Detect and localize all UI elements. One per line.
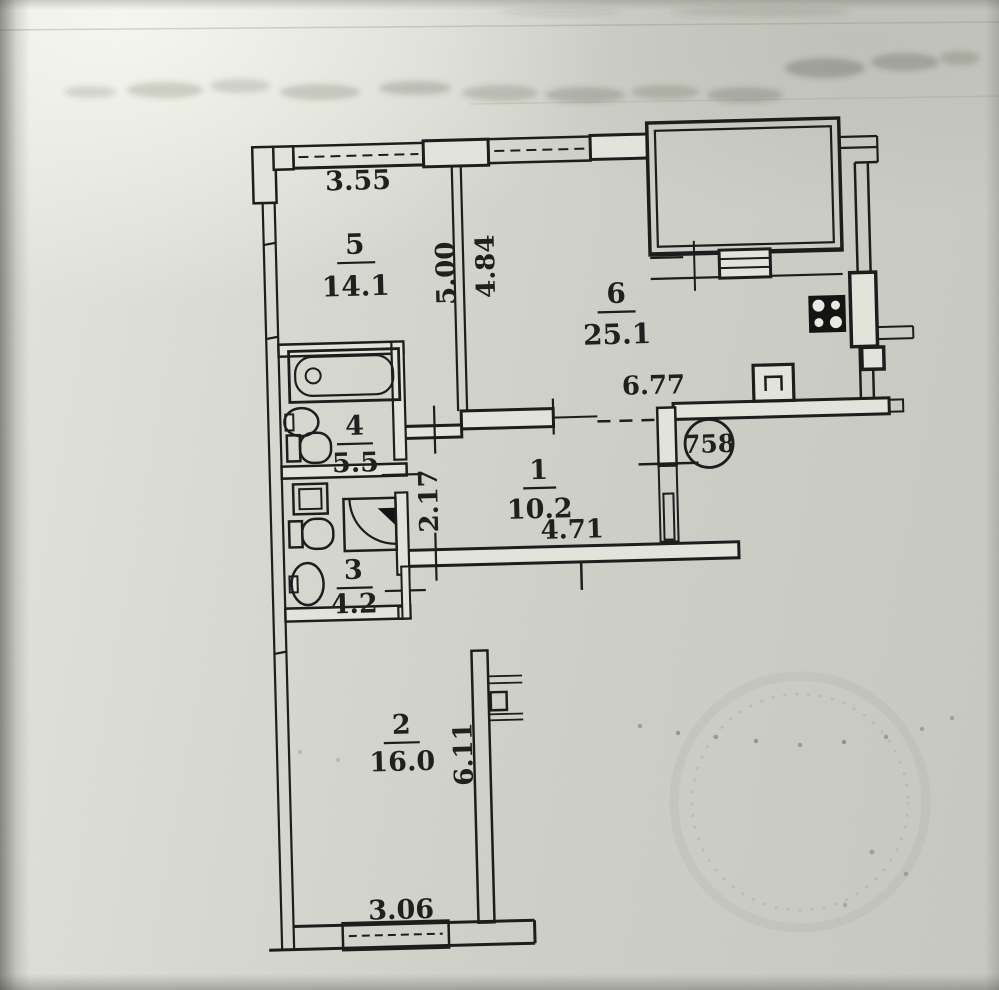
door-hinge-stub xyxy=(581,562,582,590)
wall-top-stub xyxy=(273,146,294,170)
room6-number: 6 xyxy=(606,277,626,310)
door-tick-room2 xyxy=(435,533,436,581)
wall-hall-top xyxy=(461,409,553,429)
room1-number: 1 xyxy=(529,455,549,486)
dim-484: 4.84 xyxy=(471,234,503,298)
room5-area: 14.1 xyxy=(321,269,390,304)
dim-355: 3.55 xyxy=(325,165,392,198)
dim-611: 6.11 xyxy=(448,722,480,786)
kitchen-sink xyxy=(753,364,794,401)
dim-471: 4.71 xyxy=(540,514,604,546)
room4-area: 5.5 xyxy=(332,447,380,479)
wall-pier xyxy=(423,139,489,167)
room6-area: 25.1 xyxy=(583,317,652,352)
apartment-number: 758 xyxy=(683,429,736,459)
dim-217: 2.17 xyxy=(414,469,446,533)
wall-top-solid xyxy=(590,134,648,159)
room5-number: 5 xyxy=(345,227,365,260)
dim-500: 5.00 xyxy=(431,241,463,305)
dim-677: 6.77 xyxy=(621,370,685,402)
wall-jog xyxy=(401,566,410,618)
stove-icon xyxy=(808,295,846,333)
kitchen-counter xyxy=(850,272,878,347)
dim-306: 3.06 xyxy=(368,894,435,927)
scanned-floor-plan-photo: 758 xyxy=(0,0,999,990)
wall-corridor-top xyxy=(404,425,462,439)
door-tick-room5 xyxy=(434,406,435,454)
room4-number: 4 xyxy=(345,411,365,442)
room2-area: 16.0 xyxy=(369,746,436,779)
room3-area: 4.2 xyxy=(330,588,378,620)
wall-thin xyxy=(553,416,597,417)
kitchen-box xyxy=(862,347,885,370)
floor-plan-svg: 758 xyxy=(0,0,999,990)
dashed-opening xyxy=(597,420,655,422)
room2-number: 2 xyxy=(392,709,412,740)
room3-number: 3 xyxy=(343,555,363,586)
